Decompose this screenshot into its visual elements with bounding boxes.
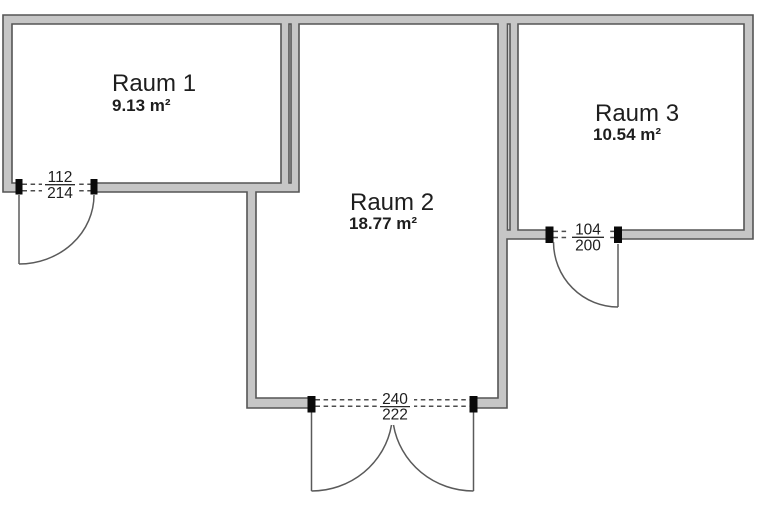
door-1-left-jamb xyxy=(16,179,23,195)
floor-plan-canvas: Raum 1 9.13 m² Raum 2 18.77 m² Raum 3 10… xyxy=(0,0,768,511)
floor-plan: Raum 1 9.13 m² Raum 2 18.77 m² Raum 3 10… xyxy=(0,0,768,511)
room-1-area: 9.13 m² xyxy=(112,96,171,115)
room-2-name: Raum 2 xyxy=(350,189,434,216)
door-1-right-jamb xyxy=(91,179,98,195)
dim-1-label: 112 214 xyxy=(45,169,75,202)
door-1-swing-arc xyxy=(19,195,94,264)
dim-2-height: 222 xyxy=(382,407,408,424)
door-2-right-jamb xyxy=(470,396,478,413)
dim-1-width: 112 xyxy=(48,169,73,186)
door-3-right-jamb xyxy=(614,227,622,244)
dim-3-height: 200 xyxy=(575,238,601,255)
dim-1-height: 214 xyxy=(47,185,73,202)
door-1 xyxy=(19,195,94,264)
door-2-left-jamb xyxy=(308,396,316,413)
dim-3-width: 104 xyxy=(575,222,601,239)
room-3-name: Raum 3 xyxy=(595,100,679,127)
room-1-name: Raum 1 xyxy=(112,70,196,97)
room-3-area: 10.54 m² xyxy=(593,125,661,144)
room-2-area: 18.77 m² xyxy=(349,214,417,233)
dim-2-width: 240 xyxy=(382,391,408,408)
door-2-right-swing-arc xyxy=(394,425,474,491)
dim-3-label: 104 200 xyxy=(572,222,604,255)
dim-2-label: 240 222 xyxy=(380,391,410,424)
door-2 xyxy=(312,413,474,492)
door-3-left-jamb xyxy=(546,227,554,244)
door-2-left-swing-arc xyxy=(312,425,392,491)
